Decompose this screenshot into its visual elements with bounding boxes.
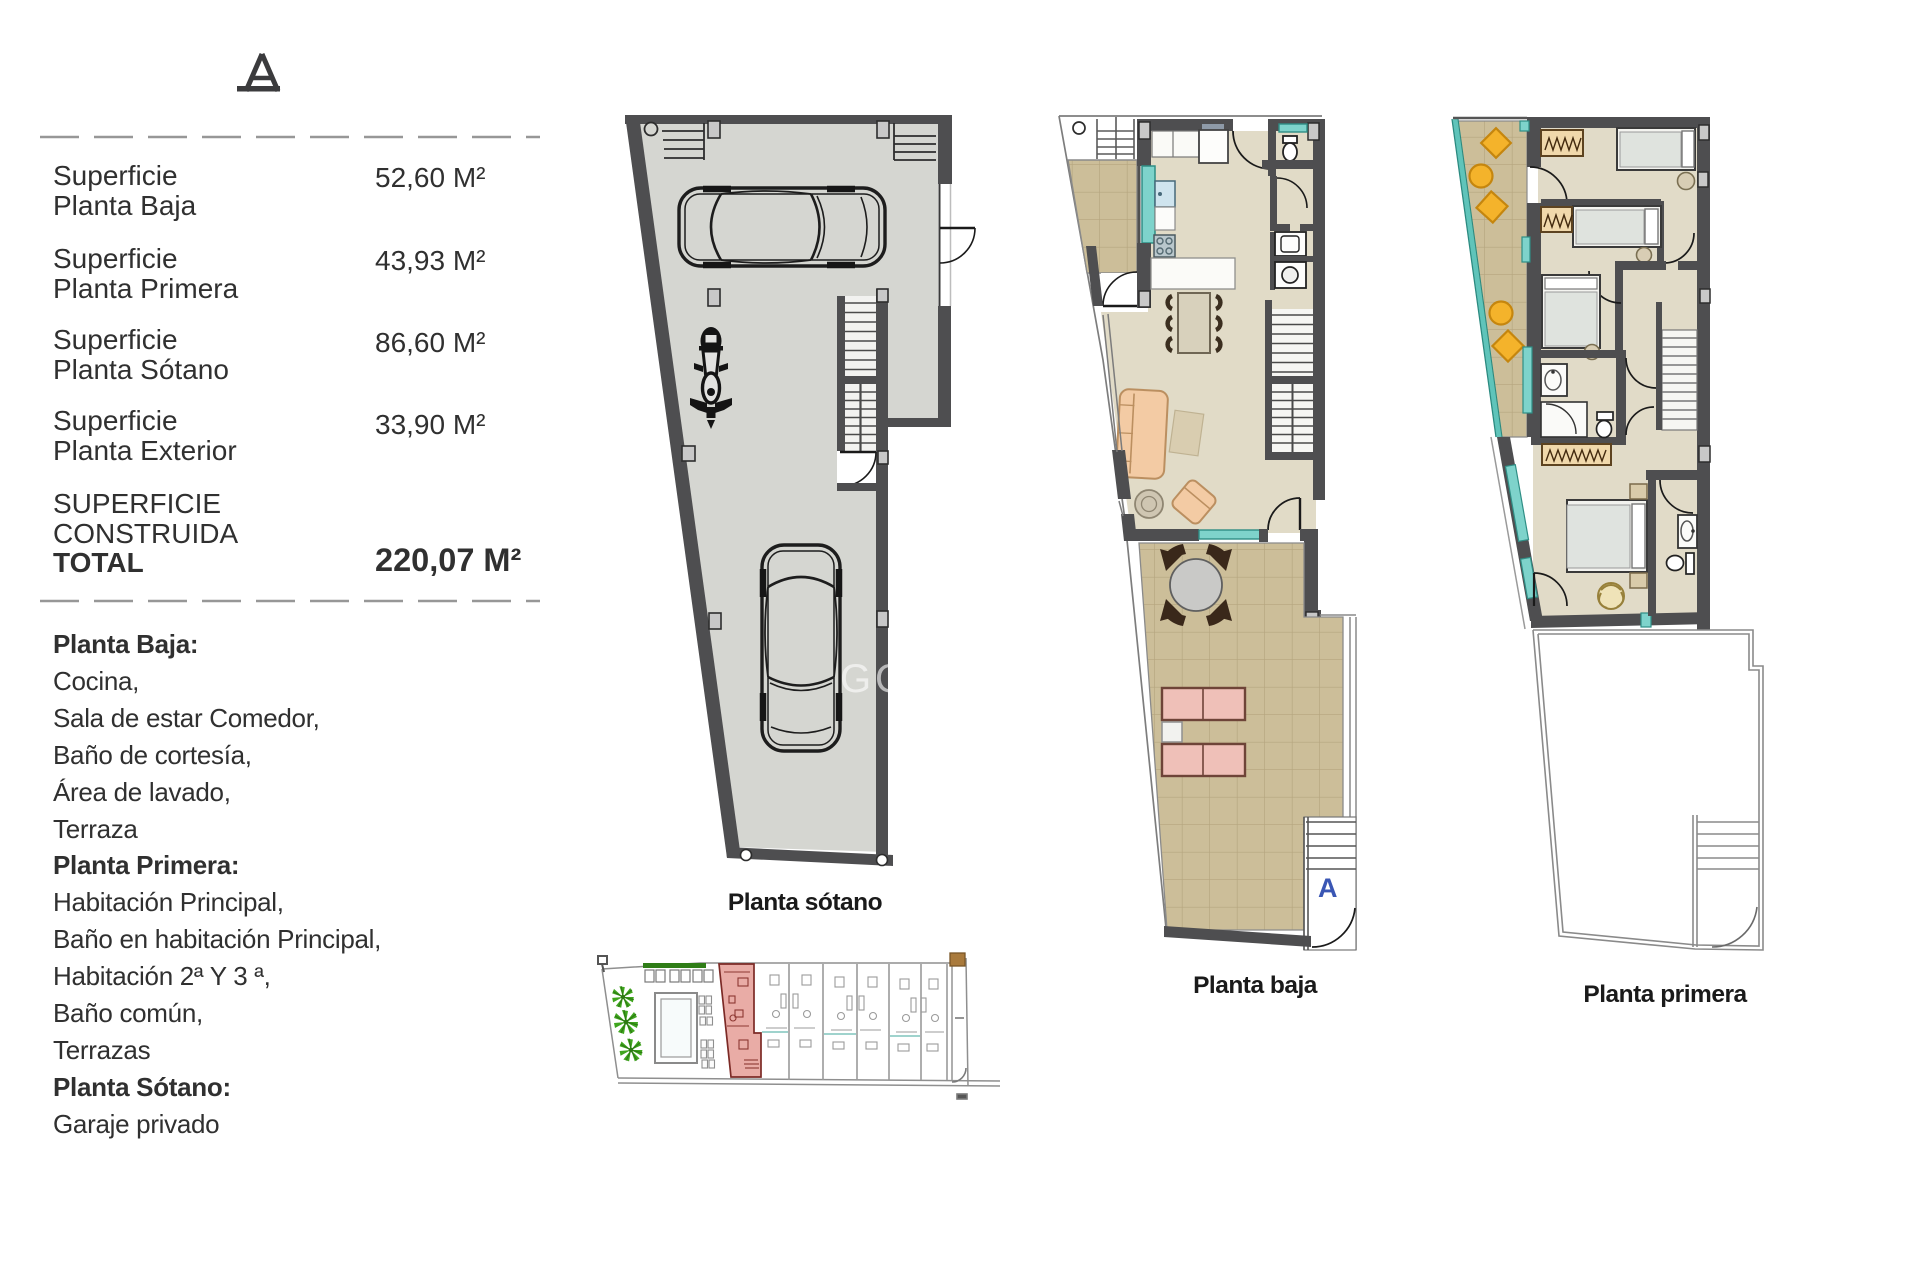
svg-text:A: A — [1318, 873, 1338, 903]
svg-text:GOLD: GOLD — [840, 657, 969, 701]
